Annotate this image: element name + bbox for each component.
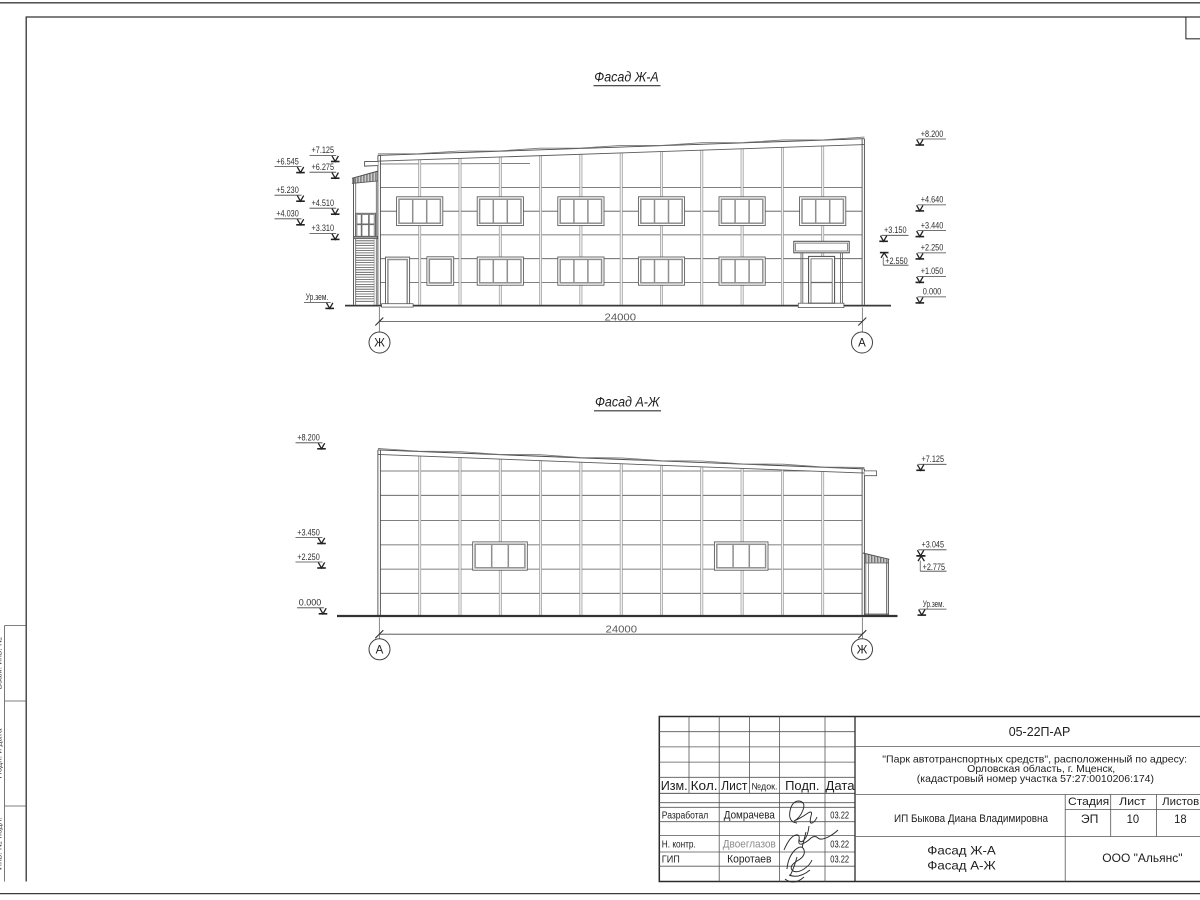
- svg-text:18: 18: [1174, 812, 1187, 826]
- svg-text:03.22: 03.22: [830, 810, 849, 821]
- svg-text:Разработал: Разработал: [662, 809, 709, 821]
- svg-text:А: А: [376, 644, 384, 656]
- svg-text:ГИП: ГИП: [662, 854, 680, 865]
- svg-text:+7.125: +7.125: [922, 454, 945, 464]
- svg-text:Дата: Дата: [826, 778, 856, 793]
- svg-text:ИП Быкова Диана Владимировна: ИП Быкова Диана Владимировна: [894, 813, 1049, 825]
- svg-text:Лист: Лист: [1119, 796, 1146, 808]
- svg-text:+7.125: +7.125: [312, 145, 335, 155]
- svg-text:Взам. инв. №: Взам. инв. №: [0, 637, 3, 690]
- svg-text:Стадия: Стадия: [1068, 796, 1109, 808]
- svg-text:+3.440: +3.440: [921, 220, 944, 230]
- svg-text:Фасад А-Ж: Фасад А-Ж: [595, 395, 661, 410]
- svg-text:+8.200: +8.200: [921, 129, 944, 139]
- svg-text:05-22П-АР: 05-22П-АР: [1009, 724, 1071, 739]
- svg-text:10: 10: [1127, 812, 1140, 826]
- svg-text:+2.250: +2.250: [297, 552, 320, 562]
- svg-text:ЭП: ЭП: [1081, 812, 1099, 826]
- svg-text:Ж: Ж: [374, 338, 385, 350]
- svg-text:+6.275: +6.275: [312, 162, 335, 172]
- svg-text:Двоеглазов: Двоеглазов: [723, 839, 776, 851]
- svg-text:+5.230: +5.230: [276, 185, 299, 195]
- svg-text:Ур.зем.: Ур.зем.: [306, 292, 329, 302]
- svg-text:+4.510: +4.510: [312, 198, 335, 208]
- svg-text:Коротаев: Коротаев: [727, 853, 771, 865]
- svg-text:Подп. и дата: Подп. и дата: [0, 728, 3, 778]
- svg-text:Подп.: Подп.: [785, 778, 819, 793]
- svg-text:Лист: Лист: [721, 778, 747, 793]
- svg-text:ООО "Альянс": ООО "Альянс": [1102, 851, 1182, 865]
- svg-text:+3.450: +3.450: [297, 527, 320, 537]
- svg-text:Фасад Ж-А: Фасад Ж-А: [927, 844, 996, 858]
- svg-text:+1.050: +1.050: [921, 266, 944, 276]
- svg-text:(кадастровый номер участка 57:: (кадастровый номер участка 57:27:0010206…: [917, 774, 1154, 785]
- svg-text:+4.640: +4.640: [921, 195, 944, 205]
- svg-text:+6.545: +6.545: [276, 156, 299, 166]
- svg-text:03.22: 03.22: [830, 854, 849, 865]
- svg-text:+3.310: +3.310: [312, 223, 335, 233]
- svg-text:Домрачева: Домрачева: [724, 809, 776, 821]
- svg-text:+3.045: +3.045: [922, 540, 945, 550]
- svg-text:Изм.: Изм.: [661, 778, 688, 793]
- svg-text:03.22: 03.22: [830, 840, 849, 851]
- svg-text:Ж: Ж: [857, 644, 868, 656]
- svg-text:+2.775: +2.775: [923, 562, 946, 572]
- svg-text:Н. контр.: Н. контр.: [662, 840, 696, 851]
- svg-text:Кол.: Кол.: [691, 778, 718, 793]
- svg-text:0.000: 0.000: [299, 598, 322, 608]
- svg-text:+4.030: +4.030: [276, 209, 299, 219]
- svg-text:+2.250: +2.250: [921, 243, 944, 253]
- svg-text:+3.150: +3.150: [884, 225, 907, 235]
- svg-text:Листов: Листов: [1162, 796, 1199, 808]
- svg-text:Инв. № подл.: Инв. № подл.: [0, 817, 3, 870]
- svg-text:+8.200: +8.200: [297, 433, 320, 443]
- svg-text:А: А: [858, 338, 866, 350]
- svg-text:24000: 24000: [605, 312, 637, 323]
- svg-text:№док.: №док.: [752, 782, 778, 793]
- svg-text:+2.550: +2.550: [885, 256, 908, 266]
- svg-text:0.000: 0.000: [923, 287, 942, 297]
- svg-text:Фасад А-Ж: Фасад А-Ж: [927, 858, 996, 872]
- svg-text:Фасад Ж-А: Фасад Ж-А: [594, 70, 659, 85]
- svg-text:Ур.зем.: Ур.зем.: [923, 599, 945, 609]
- svg-text:24000: 24000: [606, 624, 638, 635]
